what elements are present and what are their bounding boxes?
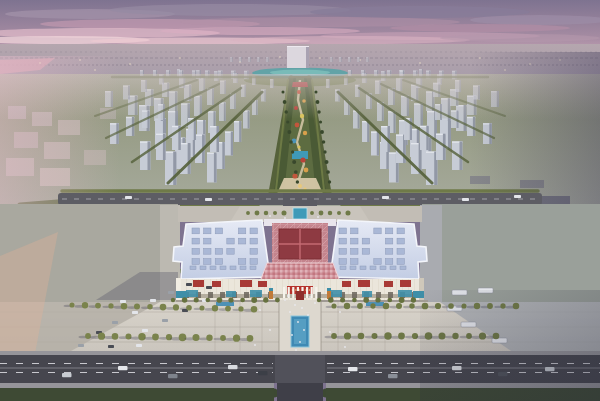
landmark-tower xyxy=(287,47,309,68)
scene-canvas xyxy=(0,0,600,401)
left-pink-haze xyxy=(0,56,120,216)
park-water-feature xyxy=(292,151,308,159)
entrance-door xyxy=(296,291,304,300)
left-wing-roof xyxy=(173,220,273,279)
cross-street xyxy=(277,383,323,401)
back-reflecting-pool xyxy=(293,208,307,219)
bottom-right-dusk xyxy=(420,290,600,401)
aerial-rendering xyxy=(0,0,600,401)
cloud-streaks xyxy=(0,4,600,45)
intersection xyxy=(275,355,325,383)
